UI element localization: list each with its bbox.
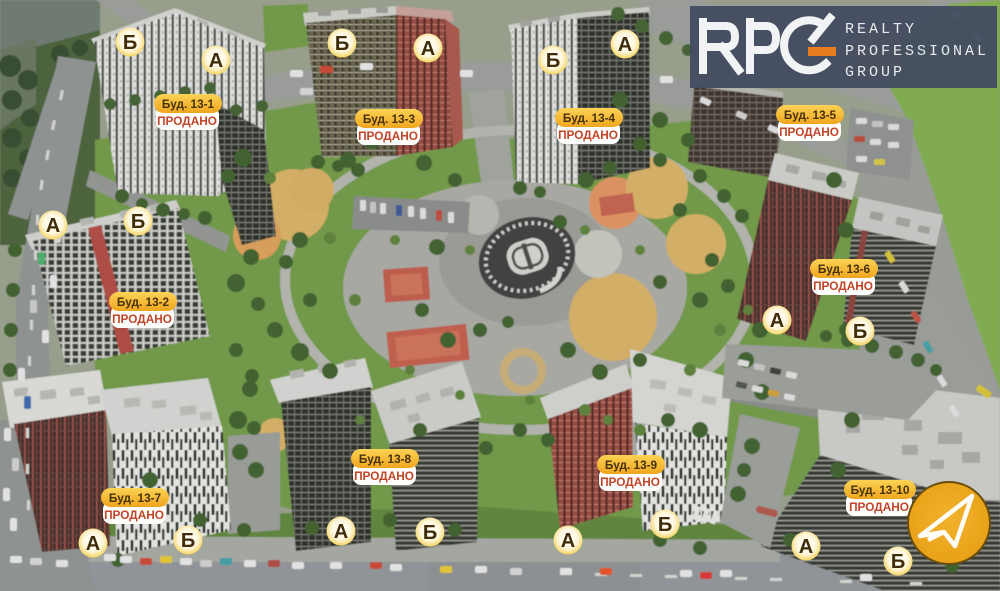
svg-text:PROFESSIONAL: PROFESSIONAL (845, 43, 989, 60)
svg-text:Б: Б (546, 50, 560, 72)
svg-text:Буд. 13-1: Буд. 13-1 (162, 97, 215, 111)
svg-text:Буд. 13-4: Буд. 13-4 (563, 111, 616, 125)
svg-text:Б: Б (123, 32, 137, 54)
svg-text:ПРОДАНО: ПРОДАНО (358, 129, 418, 143)
svg-text:Буд. 13-8: Буд. 13-8 (359, 452, 412, 466)
svg-text:Б: Б (335, 33, 349, 55)
svg-text:Б: Б (131, 211, 145, 233)
svg-text:ПРОДАНО: ПРОДАНО (104, 508, 164, 522)
svg-text:ПРОДАНО: ПРОДАНО (157, 114, 217, 128)
svg-text:А: А (618, 34, 632, 56)
svg-text:Б: Б (423, 522, 437, 544)
svg-text:ПРОДАНО: ПРОДАНО (112, 312, 172, 326)
svg-text:Буд. 13-7: Буд. 13-7 (109, 491, 162, 505)
svg-text:Б: Б (853, 321, 867, 343)
svg-text:ПРОДАНО: ПРОДАНО (354, 469, 414, 483)
svg-text:Б: Б (658, 514, 672, 536)
svg-text:Буд. 13-9: Буд. 13-9 (605, 458, 658, 472)
svg-text:А: А (86, 533, 100, 555)
svg-text:ПРОДАНО: ПРОДАНО (600, 475, 660, 489)
svg-text:А: А (46, 215, 60, 237)
svg-text:Б: Б (891, 551, 905, 573)
svg-text:А: А (561, 530, 575, 552)
svg-text:А: А (334, 521, 348, 543)
svg-text:А: А (421, 38, 435, 60)
svg-text:Буд. 13-6: Буд. 13-6 (818, 262, 871, 276)
svg-text:REALTY: REALTY (845, 21, 917, 38)
svg-text:GROUP: GROUP (845, 64, 905, 81)
svg-text:Буд. 13-3: Буд. 13-3 (363, 112, 416, 126)
svg-text:ПРОДАНО: ПРОДАНО (558, 128, 618, 142)
svg-text:Буд. 13-10: Буд. 13-10 (851, 483, 910, 497)
svg-text:ПРОДАНО: ПРОДАНО (779, 125, 839, 139)
svg-text:Буд. 13-2: Буд. 13-2 (117, 295, 170, 309)
svg-text:А: А (799, 536, 813, 558)
svg-text:ПРОДАНО: ПРОДАНО (813, 279, 873, 293)
svg-text:Буд. 13-5: Буд. 13-5 (784, 108, 837, 122)
svg-text:А: А (209, 50, 223, 72)
svg-text:ПРОДАНО: ПРОДАНО (849, 500, 909, 514)
svg-text:А: А (770, 310, 784, 332)
svg-text:Б: Б (181, 530, 195, 552)
